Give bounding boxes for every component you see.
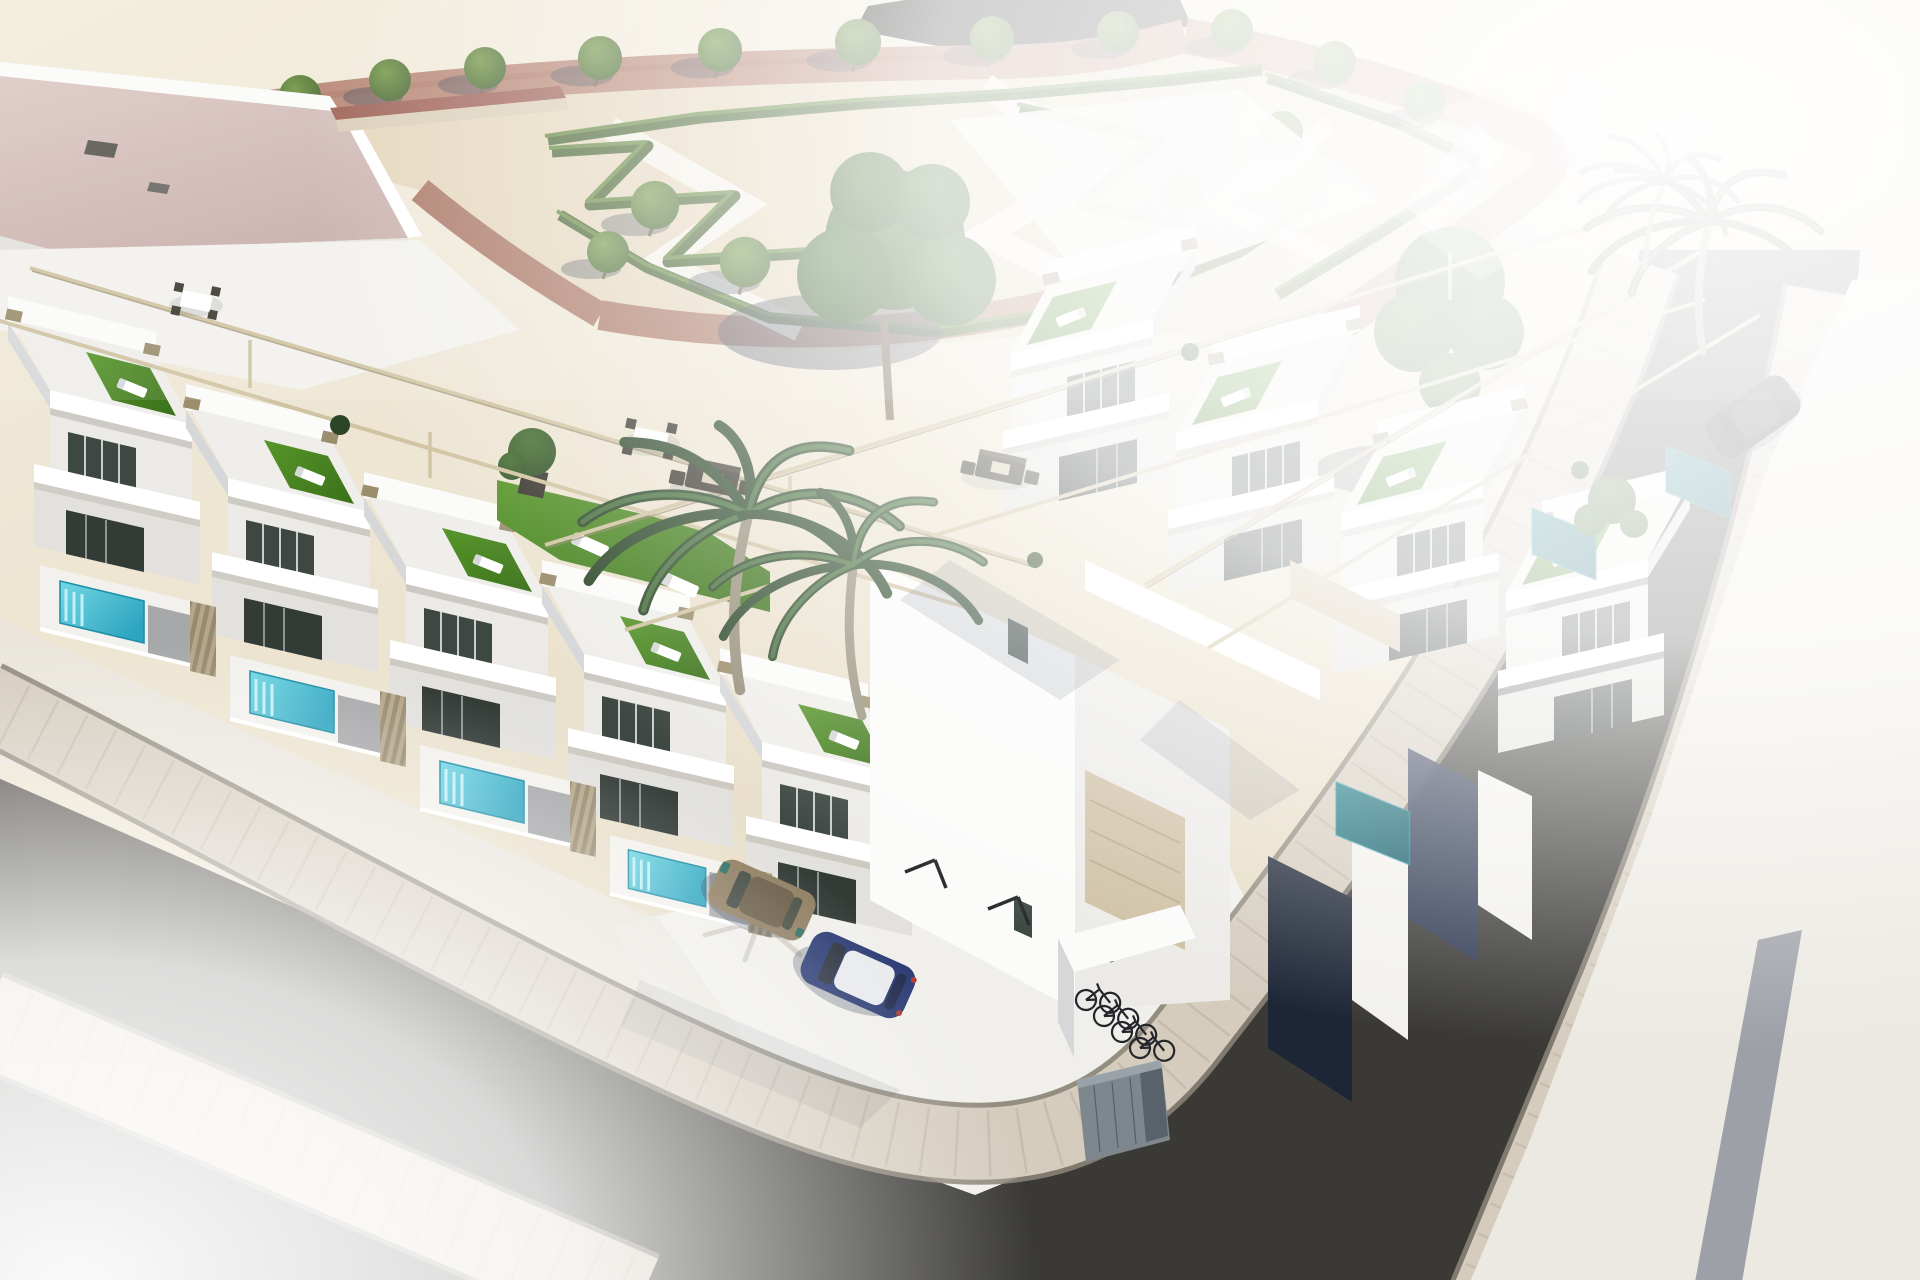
overexposure-bottom-left <box>0 0 1920 1280</box>
architectural-rendering <box>0 0 1920 1280</box>
render-canvas <box>0 0 1920 1280</box>
